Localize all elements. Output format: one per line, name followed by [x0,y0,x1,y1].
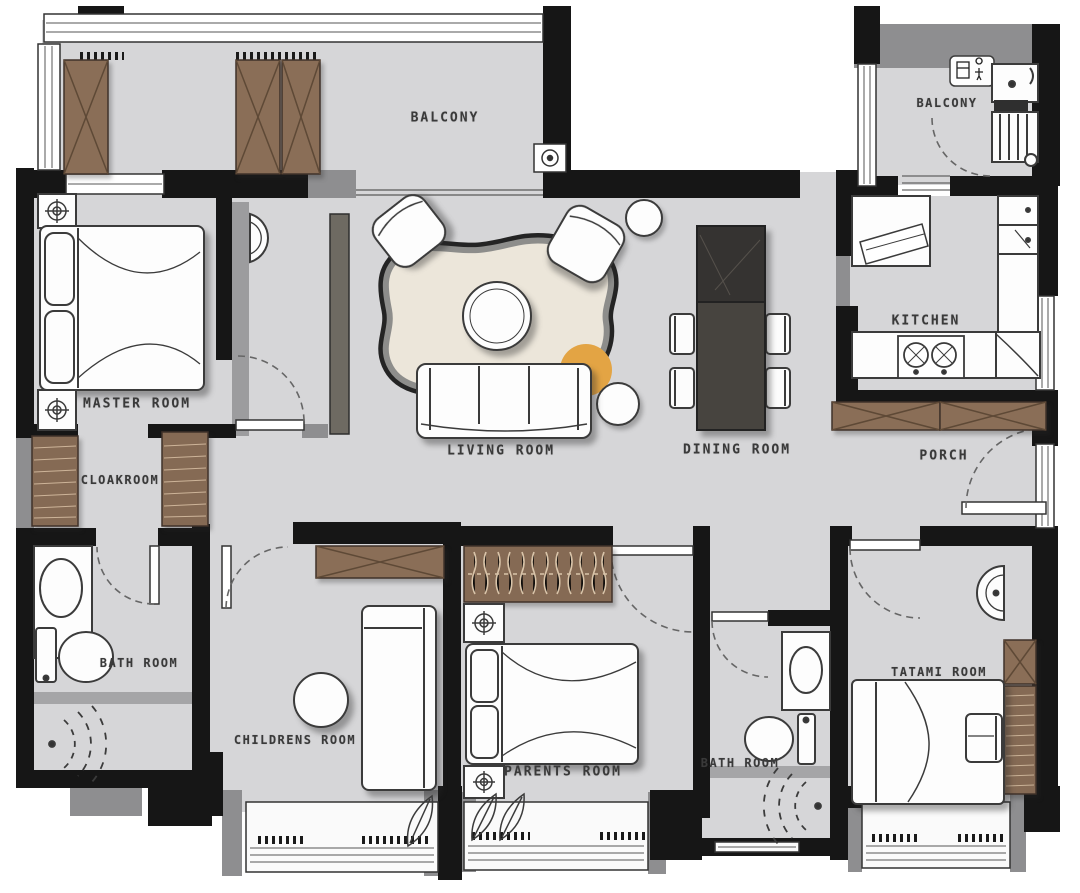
coffee-table-icon [463,282,531,350]
single-bed-icon [362,606,436,790]
symbol-box-icon [534,144,566,172]
room-label-master-room: MASTER ROOM [83,397,191,412]
room-label-living-room: LIVING ROOM [447,444,555,459]
room-label-porch: PORCH [919,449,968,464]
room-label-balcony-right: BALCONY [916,96,977,110]
sofa-icon [417,364,591,438]
childrens-wardrobe-icon [316,546,444,578]
room-label-bath-room-right: BATH ROOM [701,756,780,770]
kitchen-counter-icon [998,254,1038,332]
tv-wall-strip [330,214,349,434]
master-bed-icon [40,226,204,390]
room-label-parents-room: PARENTS ROOM [504,765,622,780]
sink-icon [790,647,822,693]
desk-chair-icon [966,714,1002,762]
fridge-icon [998,196,1038,254]
tatami-cabinet-icon [1004,640,1036,794]
parents-wardrobe-icon [464,546,612,602]
floor-plan-canvas: BALCONY BALCONY MASTER ROOM CLOAKROOM LI… [0,0,1080,893]
room-label-cloakroom: CLOAKROOM [81,473,160,487]
stool-icon [626,200,662,236]
washing-machine-icon [992,112,1038,166]
round-table-icon [294,673,348,727]
stool-icon [597,383,639,425]
room-label-tatami-room: TATAMI ROOM [891,665,987,679]
porch-cabinet-icon [832,402,1046,430]
laundry-sink-icon [992,64,1038,102]
toilet-icon [36,628,113,682]
room-label-balcony-left: BALCONY [411,111,480,126]
parents-bed-icon [466,644,638,764]
sink-icon [40,559,82,617]
room-label-childrens-room: CHILDRENS ROOM [234,733,356,747]
dining-table-icon [697,226,765,430]
stove-icon [898,336,964,378]
room-label-kitchen: KITCHEN [892,314,961,329]
room-label-dining-room: DINING ROOM [683,443,791,458]
room-label-bath-room-left: BATH ROOM [100,656,179,670]
